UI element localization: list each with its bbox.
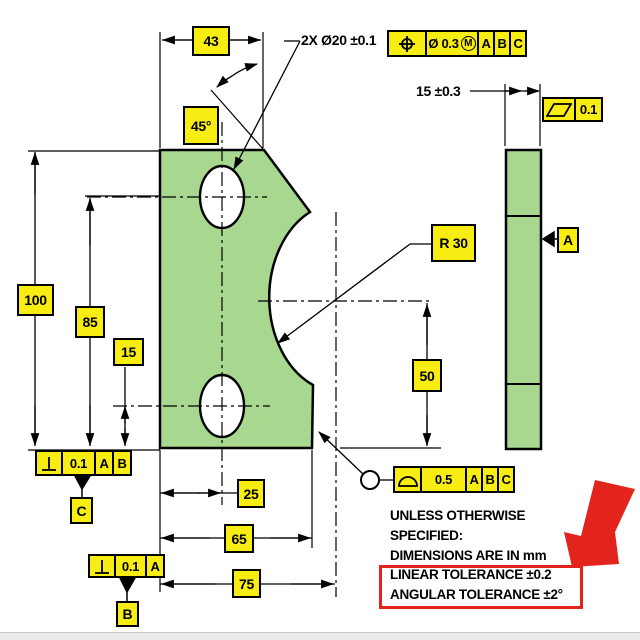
- fcf-perpendicularity-bottom: 0.1 A: [88, 554, 165, 578]
- tolerance-value: Ø 0.3: [428, 36, 458, 51]
- dim-43: 43: [192, 26, 230, 56]
- profile-of-a-surface-icon: [393, 466, 422, 493]
- datum-flag-b: B: [116, 601, 139, 627]
- dim-45deg: 45°: [183, 106, 219, 145]
- note-line: SPECIFIED:: [390, 526, 563, 546]
- dim-100: 100: [17, 284, 54, 316]
- note-line: DIMENSIONS ARE IN mm: [390, 546, 563, 566]
- bottom-bar: [0, 632, 640, 640]
- dim-65: 65: [224, 524, 254, 553]
- fcf-perpendicularity-left: 0.1 A B: [35, 450, 132, 476]
- dim-r30: R 30: [431, 224, 476, 262]
- highlight-arrow: [564, 480, 635, 567]
- dimension-lines: [35, 40, 539, 584]
- fcf-perp-bottom-datum-a: A: [145, 554, 165, 578]
- part-side-view: [506, 150, 541, 449]
- parallelism-icon: [542, 97, 576, 122]
- fcf-position-datum-c: C: [509, 30, 527, 57]
- fcf-perp-left-tolerance: 0.1: [61, 450, 96, 476]
- mmc-modifier-icon: M: [461, 36, 476, 51]
- dim-50: 50: [412, 359, 442, 392]
- fcf-perp-left-datum-b: B: [112, 450, 132, 476]
- datum-flag-a: A: [557, 227, 579, 253]
- dim-25: 25: [237, 479, 265, 508]
- dim-15: 15: [113, 338, 144, 366]
- datum-flag-c: C: [70, 497, 93, 524]
- perpendicularity-icon: [35, 450, 63, 476]
- fcf-position-tolerance: Ø 0.3 M: [425, 30, 479, 57]
- fcf-parallelism: 0.1: [542, 97, 603, 122]
- fcf-parallelism-tolerance: 0.1: [574, 97, 603, 122]
- fcf-perp-bottom-tolerance: 0.1: [114, 554, 147, 578]
- fcf-profile: 0.5 A B C: [393, 466, 515, 493]
- note-line: UNLESS OTHERWISE: [390, 506, 563, 526]
- holes-callout: 2X Ø20 ±0.1: [301, 32, 376, 48]
- fcf-profile-tolerance: 0.5: [420, 466, 467, 493]
- tolerance-highlight-box: [379, 565, 583, 609]
- thickness-callout: 15 ±0.3: [416, 83, 461, 99]
- dim-75: 75: [232, 569, 261, 598]
- position-icon: [387, 30, 427, 57]
- fcf-profile-datum-c: C: [497, 466, 515, 493]
- engineering-drawing: 43 45° 100 85 15 25 65 75 50 R 30 2X Ø20…: [0, 0, 640, 640]
- fcf-perp-left-datum-a: A: [94, 450, 114, 476]
- dim-85: 85: [75, 306, 105, 338]
- fcf-position: Ø 0.3 M A B C: [387, 30, 527, 57]
- perpendicularity-icon: [88, 554, 116, 578]
